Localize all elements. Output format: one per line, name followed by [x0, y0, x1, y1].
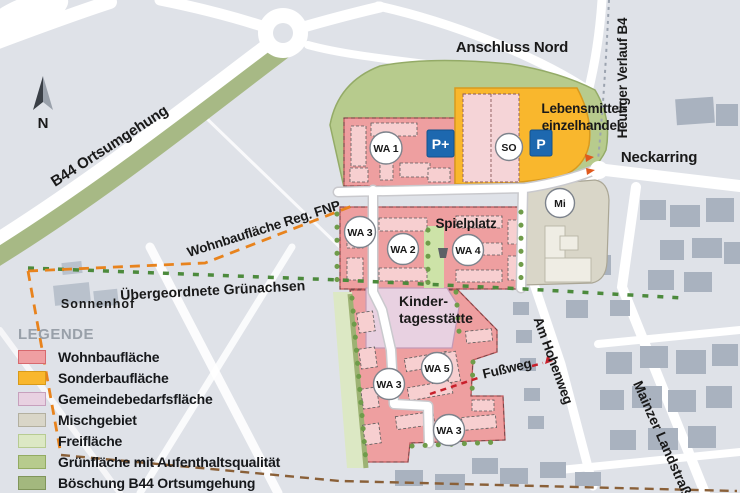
legend-item: Böschung B44 Ortsumgehung — [18, 476, 280, 490]
legend-swatch — [18, 476, 46, 490]
label-kita-1: Kinder- — [399, 293, 448, 309]
zone-label-wa3: WA 3 — [376, 379, 401, 391]
parking-label: P — [536, 136, 545, 152]
legend-label: Gemeindebedarfsfläche — [58, 391, 213, 407]
zone-label-wa3: WA 3 — [436, 425, 461, 437]
legend: LEGENDE WohnbauflächeSonderbauflächeGeme… — [18, 326, 280, 490]
legend-item: Mischgebiet — [18, 413, 280, 427]
parking-plus-label: P+ — [432, 136, 450, 152]
legend-swatch — [18, 350, 46, 364]
north-label: N — [38, 115, 49, 132]
legend-swatch — [18, 455, 46, 469]
zone-label-wa4: WA 4 — [455, 245, 480, 257]
zone-badge-wa2: WA 2 — [388, 234, 419, 265]
legend-swatch — [18, 371, 46, 385]
zone-label-wa2: WA 2 — [390, 244, 415, 256]
legend-label: Wohnbaufläche — [58, 349, 159, 365]
zone-label-wa3: WA 3 — [347, 227, 372, 239]
legend-title: LEGENDE — [18, 326, 280, 343]
legend-item: Gemeindebedarfsfläche — [18, 392, 280, 406]
zone-label-wa5: WA 5 — [424, 363, 449, 375]
label-anschluss-nord: Anschluss Nord — [456, 39, 568, 56]
legend-item: Freifläche — [18, 434, 280, 448]
label-kita-2: tagesstätte — [399, 310, 473, 326]
legend-label: Sonderbaufläche — [58, 370, 169, 386]
zone-label-wa1: WA 1 — [373, 143, 398, 155]
legend-item: Sonderbaufläche — [18, 371, 280, 385]
legend-swatch — [18, 392, 46, 406]
zone-badge-wa4: WA 4 — [453, 235, 484, 266]
parking-sign: P — [530, 130, 552, 156]
label-neckarring: Neckarring — [621, 149, 697, 166]
legend-label: Mischgebiet — [58, 412, 137, 428]
legend-item: Wohnbaufläche — [18, 350, 280, 364]
zone-badge-mi: Mi — [546, 189, 575, 218]
zone-badge-wa3-west: WA 3 — [345, 217, 376, 248]
zone-label-so: SO — [501, 142, 516, 154]
zone-badge-wa3-south: WA 3 — [434, 415, 465, 446]
legend-label: Freifläche — [58, 433, 122, 449]
zone-label-mi: Mi — [554, 198, 566, 210]
zone-badge-so: SO — [496, 134, 523, 161]
legend-item: Grünfläche mit Aufenthaltsqualität — [18, 455, 280, 469]
parking-plus-sign: P+ — [427, 130, 454, 157]
label-lebensmittel-2: einzelhandel — [542, 118, 621, 133]
label-lebensmittel-1: Lebensmittel- — [541, 101, 626, 116]
zone-badge-wa1: WA 1 — [370, 132, 402, 164]
roundabout — [258, 8, 308, 58]
label-sonnenhof: Sonnenhof — [61, 297, 135, 311]
zone-badge-wa3-mid: WA 3 — [374, 369, 405, 400]
legend-items: WohnbauflächeSonderbauflächeGemeindebeda… — [18, 350, 280, 490]
label-spielplatz: Spielplatz — [435, 216, 496, 231]
legend-swatch — [18, 413, 46, 427]
zone-badge-wa5: WA 5 — [422, 353, 453, 384]
legend-label: Böschung B44 Ortsumgehung — [58, 475, 255, 491]
legend-label: Grünfläche mit Aufenthaltsqualität — [58, 454, 280, 470]
legend-swatch — [18, 434, 46, 448]
site-plan: WA 1 WA 3 WA 2 WA 4 SO Mi WA 3 WA 5 — [0, 0, 740, 493]
